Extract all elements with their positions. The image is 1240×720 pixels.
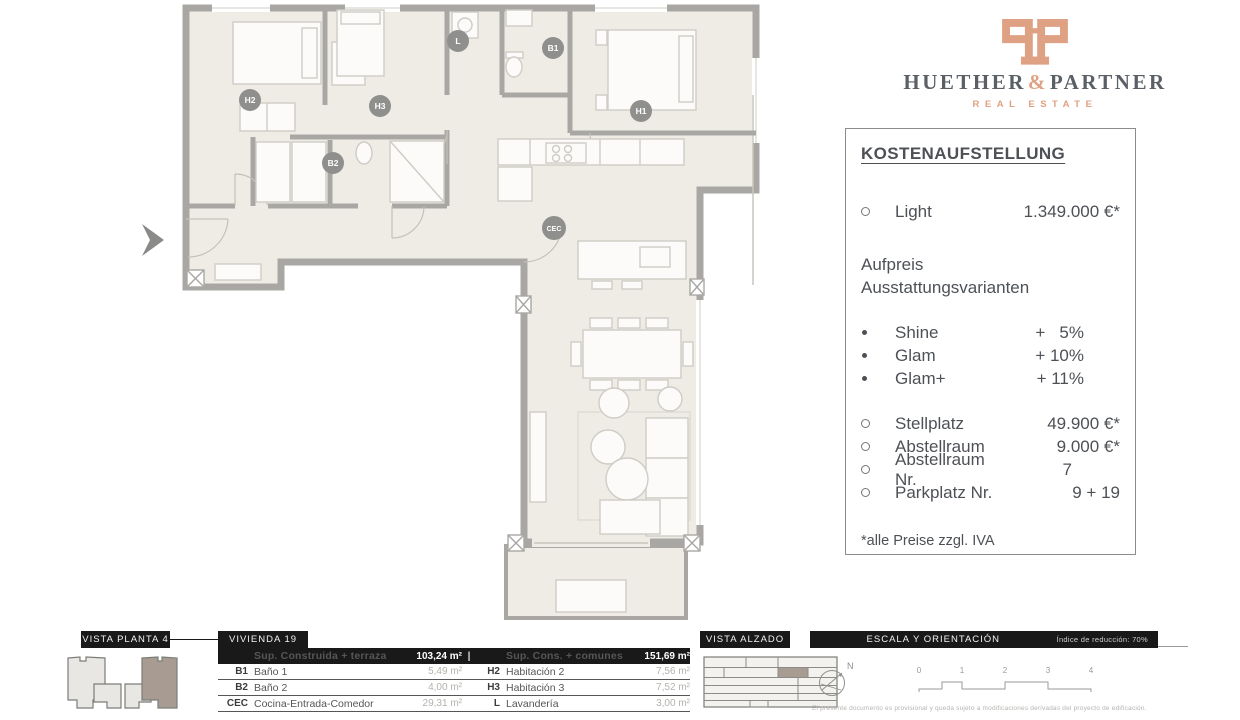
cost-panel-title: KOSTENAUFSTELLUNG: [861, 144, 1120, 164]
company-subtitle: REAL ESTATE: [900, 99, 1170, 110]
circle-bullet-icon: [861, 465, 870, 474]
compass-icon: N: [813, 656, 861, 704]
upgrade-list: Shine + 5% Glam + 10% Glam+ + 11%: [861, 321, 1120, 390]
room-label-b1: B1: [548, 43, 559, 53]
vivienda-table-row: B2 Baño 2 4,00 m² H3 Habitación 3 7,52 m…: [218, 680, 690, 696]
highlighted-unit: [142, 657, 177, 708]
extras-row: Stellplatz 49.900 €*: [861, 412, 1120, 435]
cost-base-row: Light 1.349.000 €*: [861, 200, 1120, 223]
circle-bullet-icon: [861, 207, 870, 216]
room-label-b2: B2: [328, 158, 339, 168]
scale-bar-graphic: [915, 678, 1095, 698]
page: { "logo": { "name_left": "HUETHER", "amp…: [0, 0, 1240, 720]
vivienda-table: Sup. Construida + terraza 103,24 m² | Su…: [218, 648, 690, 712]
compass-north-label: N: [847, 661, 854, 671]
room-label-cec: CEC: [547, 226, 562, 233]
room-label-h2: H2: [245, 95, 256, 105]
reduction-index: Índice de reducción: 70%: [1057, 635, 1158, 644]
vivienda-table-header: Sup. Construida + terraza 103,24 m² | Su…: [218, 648, 690, 664]
extras-row: Parkplatz Nr. 9 + 19: [861, 481, 1120, 504]
cost-base-label: Light: [895, 202, 1024, 222]
room-label-h3: H3: [375, 101, 386, 111]
upgrade-row: Glam+ + 11%: [861, 367, 1120, 390]
escala-title: ESCALA Y ORIENTACIÓN: [810, 634, 1057, 645]
vista-alzado-bar: VISTA ALZADO: [700, 631, 790, 648]
extras-row: Abstellraum Nr. 7: [861, 458, 1120, 481]
vivienda-table-row: B1 Baño 1 5,49 m² H2 Habitación 2 7,56 m…: [218, 664, 690, 680]
scale-bar: 0 1 2 3 4: [915, 666, 1095, 700]
upgrade-row: Glam + 10%: [861, 344, 1120, 367]
room-label-h1: H1: [636, 106, 647, 116]
upgrade-row: Shine + 5%: [861, 321, 1120, 344]
upgrade-heading: Aufpreis Ausstattungsvarianten: [861, 253, 1120, 299]
cost-panel: KOSTENAUFSTELLUNG Light 1.349.000 €* Auf…: [845, 128, 1136, 555]
vivienda-table-row: CEC Cocina-Entrada-Comedor 29,31 m² L La…: [218, 696, 690, 712]
highlighted-elevation-cell: [778, 668, 808, 678]
escala-bar: ESCALA Y ORIENTACIÓN Índice de reducción…: [810, 631, 1158, 648]
ampersand: &: [1026, 70, 1050, 94]
cost-base-value: 1.349.000 €*: [1024, 202, 1120, 222]
circle-bullet-icon: [861, 419, 870, 428]
company-logo: HUETHER&PARTNER REAL ESTATE: [900, 12, 1170, 110]
floor-plan: H2 B2 H3 L B1 H1 CEC: [128, 0, 776, 630]
room-label-l: L: [455, 36, 460, 46]
price-footnote: *alle Preise zzgl. IVA: [861, 533, 1120, 549]
vivienda-bar: VIVIENDA 19: [218, 631, 308, 648]
bar-tail-line: [1158, 646, 1188, 647]
logo-monogram-icon: [992, 12, 1078, 68]
company-name: HUETHER&PARTNER: [900, 70, 1170, 95]
bar-connector-line: [170, 639, 218, 640]
dot-bullet-icon: [862, 353, 867, 358]
circle-bullet-icon: [861, 442, 870, 451]
dot-bullet-icon: [862, 376, 867, 381]
dot-bullet-icon: [862, 330, 867, 335]
extras-list: Stellplatz 49.900 €* Abstellraum 9.000 €…: [861, 412, 1120, 504]
entrance-arrow-icon: [142, 224, 164, 256]
fine-print: El presente documento es provisional y q…: [812, 705, 1240, 712]
vista-planta-bar: VISTA PLANTA 4: [81, 631, 170, 648]
vista-planta-miniplan: [64, 652, 186, 716]
circle-bullet-icon: [861, 488, 870, 497]
